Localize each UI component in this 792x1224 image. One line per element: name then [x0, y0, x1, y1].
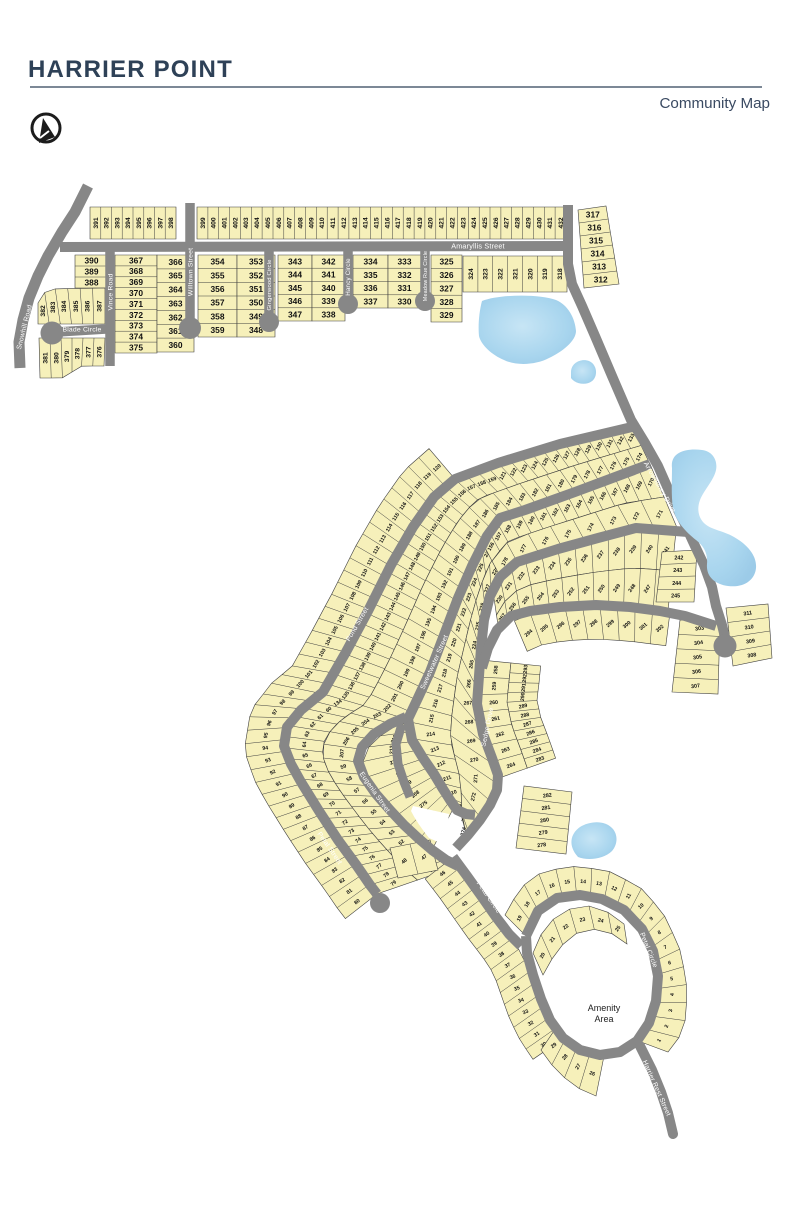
svg-text:317: 317 — [586, 209, 600, 219]
svg-text:373: 373 — [129, 321, 143, 331]
svg-text:346: 346 — [288, 296, 302, 306]
svg-text:207: 207 — [339, 749, 346, 758]
svg-text:306: 306 — [692, 669, 702, 676]
svg-text:350: 350 — [249, 298, 263, 308]
svg-text:382: 382 — [40, 305, 47, 317]
svg-text:376: 376 — [96, 346, 103, 358]
svg-text:401: 401 — [221, 217, 228, 229]
svg-text:318: 318 — [557, 268, 564, 280]
svg-text:415: 415 — [373, 217, 380, 229]
svg-text:243: 243 — [673, 568, 682, 574]
svg-text:429: 429 — [525, 217, 532, 229]
svg-text:353: 353 — [249, 257, 263, 267]
svg-text:390: 390 — [85, 255, 99, 265]
svg-text:314: 314 — [591, 248, 605, 258]
svg-text:Hancy Circle: Hancy Circle — [345, 258, 352, 296]
svg-text:311: 311 — [743, 610, 752, 617]
svg-text:Gingerwood Circle: Gingerwood Circle — [267, 259, 273, 310]
svg-text:329: 329 — [440, 310, 454, 320]
svg-text:419: 419 — [417, 217, 424, 229]
svg-text:374: 374 — [129, 332, 143, 342]
svg-text:355: 355 — [211, 270, 225, 280]
svg-text:347: 347 — [288, 309, 302, 319]
svg-text:397: 397 — [157, 217, 164, 229]
svg-text:371: 371 — [129, 299, 143, 309]
svg-text:404: 404 — [254, 217, 261, 229]
svg-text:396: 396 — [146, 217, 153, 229]
svg-text:354: 354 — [211, 257, 225, 267]
svg-text:Area: Area — [594, 1014, 613, 1024]
svg-text:258: 258 — [493, 665, 500, 674]
svg-text:291: 291 — [521, 683, 528, 692]
svg-text:308: 308 — [747, 652, 757, 659]
svg-text:268: 268 — [464, 719, 473, 726]
svg-text:307: 307 — [691, 683, 701, 690]
svg-text:414: 414 — [363, 217, 370, 229]
svg-text:430: 430 — [536, 217, 543, 229]
svg-text:394: 394 — [125, 217, 132, 229]
svg-text:340: 340 — [322, 283, 336, 293]
svg-text:13: 13 — [596, 881, 603, 888]
svg-text:366: 366 — [169, 257, 183, 267]
svg-text:420: 420 — [428, 217, 435, 229]
svg-text:328: 328 — [440, 297, 454, 307]
svg-text:336: 336 — [364, 283, 378, 293]
svg-text:384: 384 — [61, 301, 68, 313]
svg-text:64: 64 — [302, 741, 309, 747]
svg-text:321: 321 — [512, 268, 519, 280]
svg-text:304: 304 — [694, 640, 704, 647]
svg-text:425: 425 — [482, 217, 489, 229]
svg-text:417: 417 — [395, 217, 402, 229]
svg-text:413: 413 — [352, 217, 359, 229]
svg-text:282: 282 — [543, 792, 553, 799]
svg-text:406: 406 — [276, 217, 283, 229]
svg-text:375: 375 — [129, 343, 143, 353]
svg-text:399: 399 — [200, 217, 207, 229]
svg-text:380: 380 — [53, 352, 60, 364]
svg-text:370: 370 — [129, 288, 143, 298]
svg-text:411: 411 — [330, 217, 337, 228]
svg-text:HARRIER POINT: HARRIER POINT — [28, 56, 233, 83]
svg-text:379: 379 — [64, 351, 71, 363]
svg-text:Community Map: Community Map — [659, 95, 770, 112]
svg-text:400: 400 — [211, 217, 218, 229]
svg-text:269: 269 — [467, 738, 477, 745]
svg-text:323: 323 — [483, 268, 490, 280]
svg-text:290: 290 — [520, 692, 527, 701]
svg-text:421: 421 — [439, 217, 446, 229]
svg-text:244: 244 — [672, 581, 681, 587]
svg-text:369: 369 — [129, 277, 143, 287]
svg-text:327: 327 — [440, 283, 454, 293]
svg-text:407: 407 — [287, 217, 294, 229]
svg-text:352: 352 — [249, 270, 263, 280]
svg-text:364: 364 — [169, 285, 183, 295]
svg-text:424: 424 — [471, 217, 478, 229]
svg-text:356: 356 — [211, 284, 225, 294]
svg-text:331: 331 — [398, 283, 412, 293]
svg-text:388: 388 — [85, 277, 99, 287]
svg-text:423: 423 — [460, 217, 467, 229]
svg-text:342: 342 — [322, 257, 336, 267]
svg-text:Amenity: Amenity — [588, 1003, 621, 1013]
svg-text:387: 387 — [96, 300, 103, 312]
svg-text:398: 398 — [168, 217, 175, 229]
svg-text:377: 377 — [85, 346, 92, 358]
svg-text:332: 332 — [398, 270, 412, 280]
svg-text:293: 293 — [523, 664, 530, 673]
svg-text:357: 357 — [211, 298, 225, 308]
svg-text:330: 330 — [398, 296, 412, 306]
svg-text:422: 422 — [449, 217, 456, 229]
svg-text:363: 363 — [169, 298, 183, 308]
svg-text:214: 214 — [426, 731, 436, 738]
svg-text:266: 266 — [466, 679, 473, 688]
svg-text:259: 259 — [491, 681, 498, 690]
svg-text:316: 316 — [587, 222, 601, 232]
svg-text:367: 367 — [129, 255, 143, 265]
svg-text:313: 313 — [592, 261, 606, 271]
svg-text:95: 95 — [263, 732, 270, 739]
svg-text:338: 338 — [322, 309, 336, 319]
svg-text:324: 324 — [468, 268, 475, 280]
svg-text:334: 334 — [364, 257, 378, 267]
svg-text:344: 344 — [288, 270, 302, 280]
svg-text:359: 359 — [211, 325, 225, 335]
svg-text:427: 427 — [504, 217, 511, 229]
svg-text:14: 14 — [580, 879, 586, 885]
svg-text:Vince Road: Vince Road — [107, 273, 114, 310]
svg-text:280: 280 — [540, 817, 550, 824]
svg-text:278: 278 — [537, 842, 547, 849]
svg-text:426: 426 — [493, 217, 500, 229]
svg-text:381: 381 — [42, 352, 49, 364]
svg-text:325: 325 — [440, 257, 454, 267]
svg-text:409: 409 — [308, 217, 315, 229]
svg-text:271: 271 — [473, 774, 479, 783]
svg-text:368: 368 — [129, 266, 143, 276]
svg-text:Blade Circle: Blade Circle — [62, 326, 101, 333]
svg-text:312: 312 — [594, 274, 608, 284]
svg-text:402: 402 — [232, 217, 239, 229]
svg-text:351: 351 — [249, 284, 263, 294]
svg-text:412: 412 — [341, 217, 348, 229]
svg-text:365: 365 — [169, 271, 183, 281]
svg-text:408: 408 — [297, 217, 304, 229]
svg-text:339: 339 — [322, 296, 336, 306]
svg-text:391: 391 — [93, 217, 100, 229]
svg-text:281: 281 — [541, 805, 551, 812]
svg-text:428: 428 — [515, 217, 522, 229]
svg-text:343: 343 — [288, 257, 302, 267]
svg-text:389: 389 — [85, 266, 99, 276]
svg-text:405: 405 — [265, 217, 272, 229]
svg-text:320: 320 — [527, 268, 534, 280]
svg-text:310: 310 — [744, 624, 754, 631]
svg-text:416: 416 — [384, 217, 391, 229]
svg-text:358: 358 — [211, 311, 225, 321]
svg-text:386: 386 — [85, 300, 92, 312]
svg-text:315: 315 — [589, 235, 603, 245]
svg-text:337: 337 — [364, 296, 378, 306]
svg-text:378: 378 — [75, 348, 82, 360]
svg-text:4: 4 — [670, 993, 676, 996]
svg-text:395: 395 — [136, 217, 143, 229]
svg-text:392: 392 — [103, 217, 110, 229]
svg-text:292: 292 — [522, 674, 529, 683]
svg-text:322: 322 — [497, 268, 504, 280]
svg-text:341: 341 — [322, 270, 336, 280]
svg-text:15: 15 — [564, 879, 571, 886]
svg-text:Willtown Street: Willtown Street — [187, 248, 194, 296]
svg-text:418: 418 — [406, 217, 413, 229]
svg-text:372: 372 — [129, 310, 143, 320]
svg-text:362: 362 — [169, 312, 183, 322]
svg-text:360: 360 — [169, 340, 183, 350]
svg-text:335: 335 — [364, 270, 378, 280]
svg-text:245: 245 — [671, 593, 680, 599]
svg-text:326: 326 — [440, 270, 454, 280]
svg-text:279: 279 — [538, 830, 548, 837]
svg-text:260: 260 — [489, 700, 498, 706]
svg-text:393: 393 — [114, 217, 121, 229]
svg-text:Meadow Rue Circle: Meadow Rue Circle — [423, 251, 429, 301]
svg-text:309: 309 — [746, 638, 756, 645]
svg-text:Amaryllis Street: Amaryllis Street — [451, 242, 505, 251]
svg-text:267: 267 — [463, 700, 472, 706]
svg-text:242: 242 — [674, 555, 683, 561]
svg-text:94: 94 — [262, 745, 268, 751]
svg-text:403: 403 — [243, 217, 250, 229]
svg-text:385: 385 — [73, 300, 80, 312]
svg-text:383: 383 — [50, 301, 57, 313]
svg-text:305: 305 — [693, 654, 703, 661]
svg-text:410: 410 — [319, 217, 326, 229]
svg-text:319: 319 — [542, 268, 549, 280]
svg-text:345: 345 — [288, 283, 302, 293]
svg-text:431: 431 — [547, 217, 554, 229]
svg-text:333: 333 — [398, 257, 412, 267]
